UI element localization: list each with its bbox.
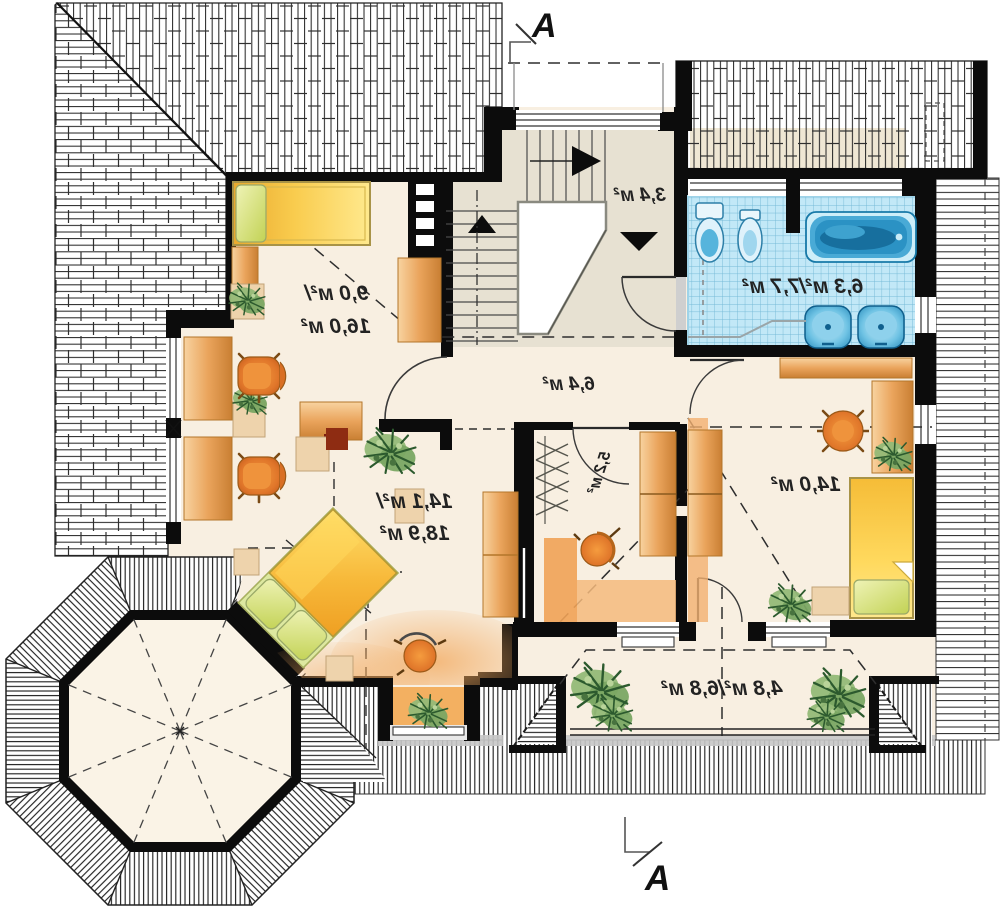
svg-text:18,9 м²: 18,9 м² [379,522,449,545]
svg-text:14,1 м²/: 14,1 м²/ [375,490,452,513]
svg-text:6,4 м²: 6,4 м² [542,374,595,395]
svg-text:9,0 м²/: 9,0 м²/ [303,282,369,305]
svg-text:6,3 м²/7,7 м²: 6,3 м²/7,7 м² [742,275,864,298]
svg-text:14,0 м²: 14,0 м² [770,473,840,496]
svg-text:16,0 м²: 16,0 м² [300,315,370,338]
svg-text:3,4 м²: 3,4 м² [613,185,666,206]
svg-text:A: A [531,7,557,45]
svg-text:4,8 м²/6,8 м²: 4,8 м²/6,8 м² [661,677,784,700]
svg-text:A: A [644,859,670,898]
